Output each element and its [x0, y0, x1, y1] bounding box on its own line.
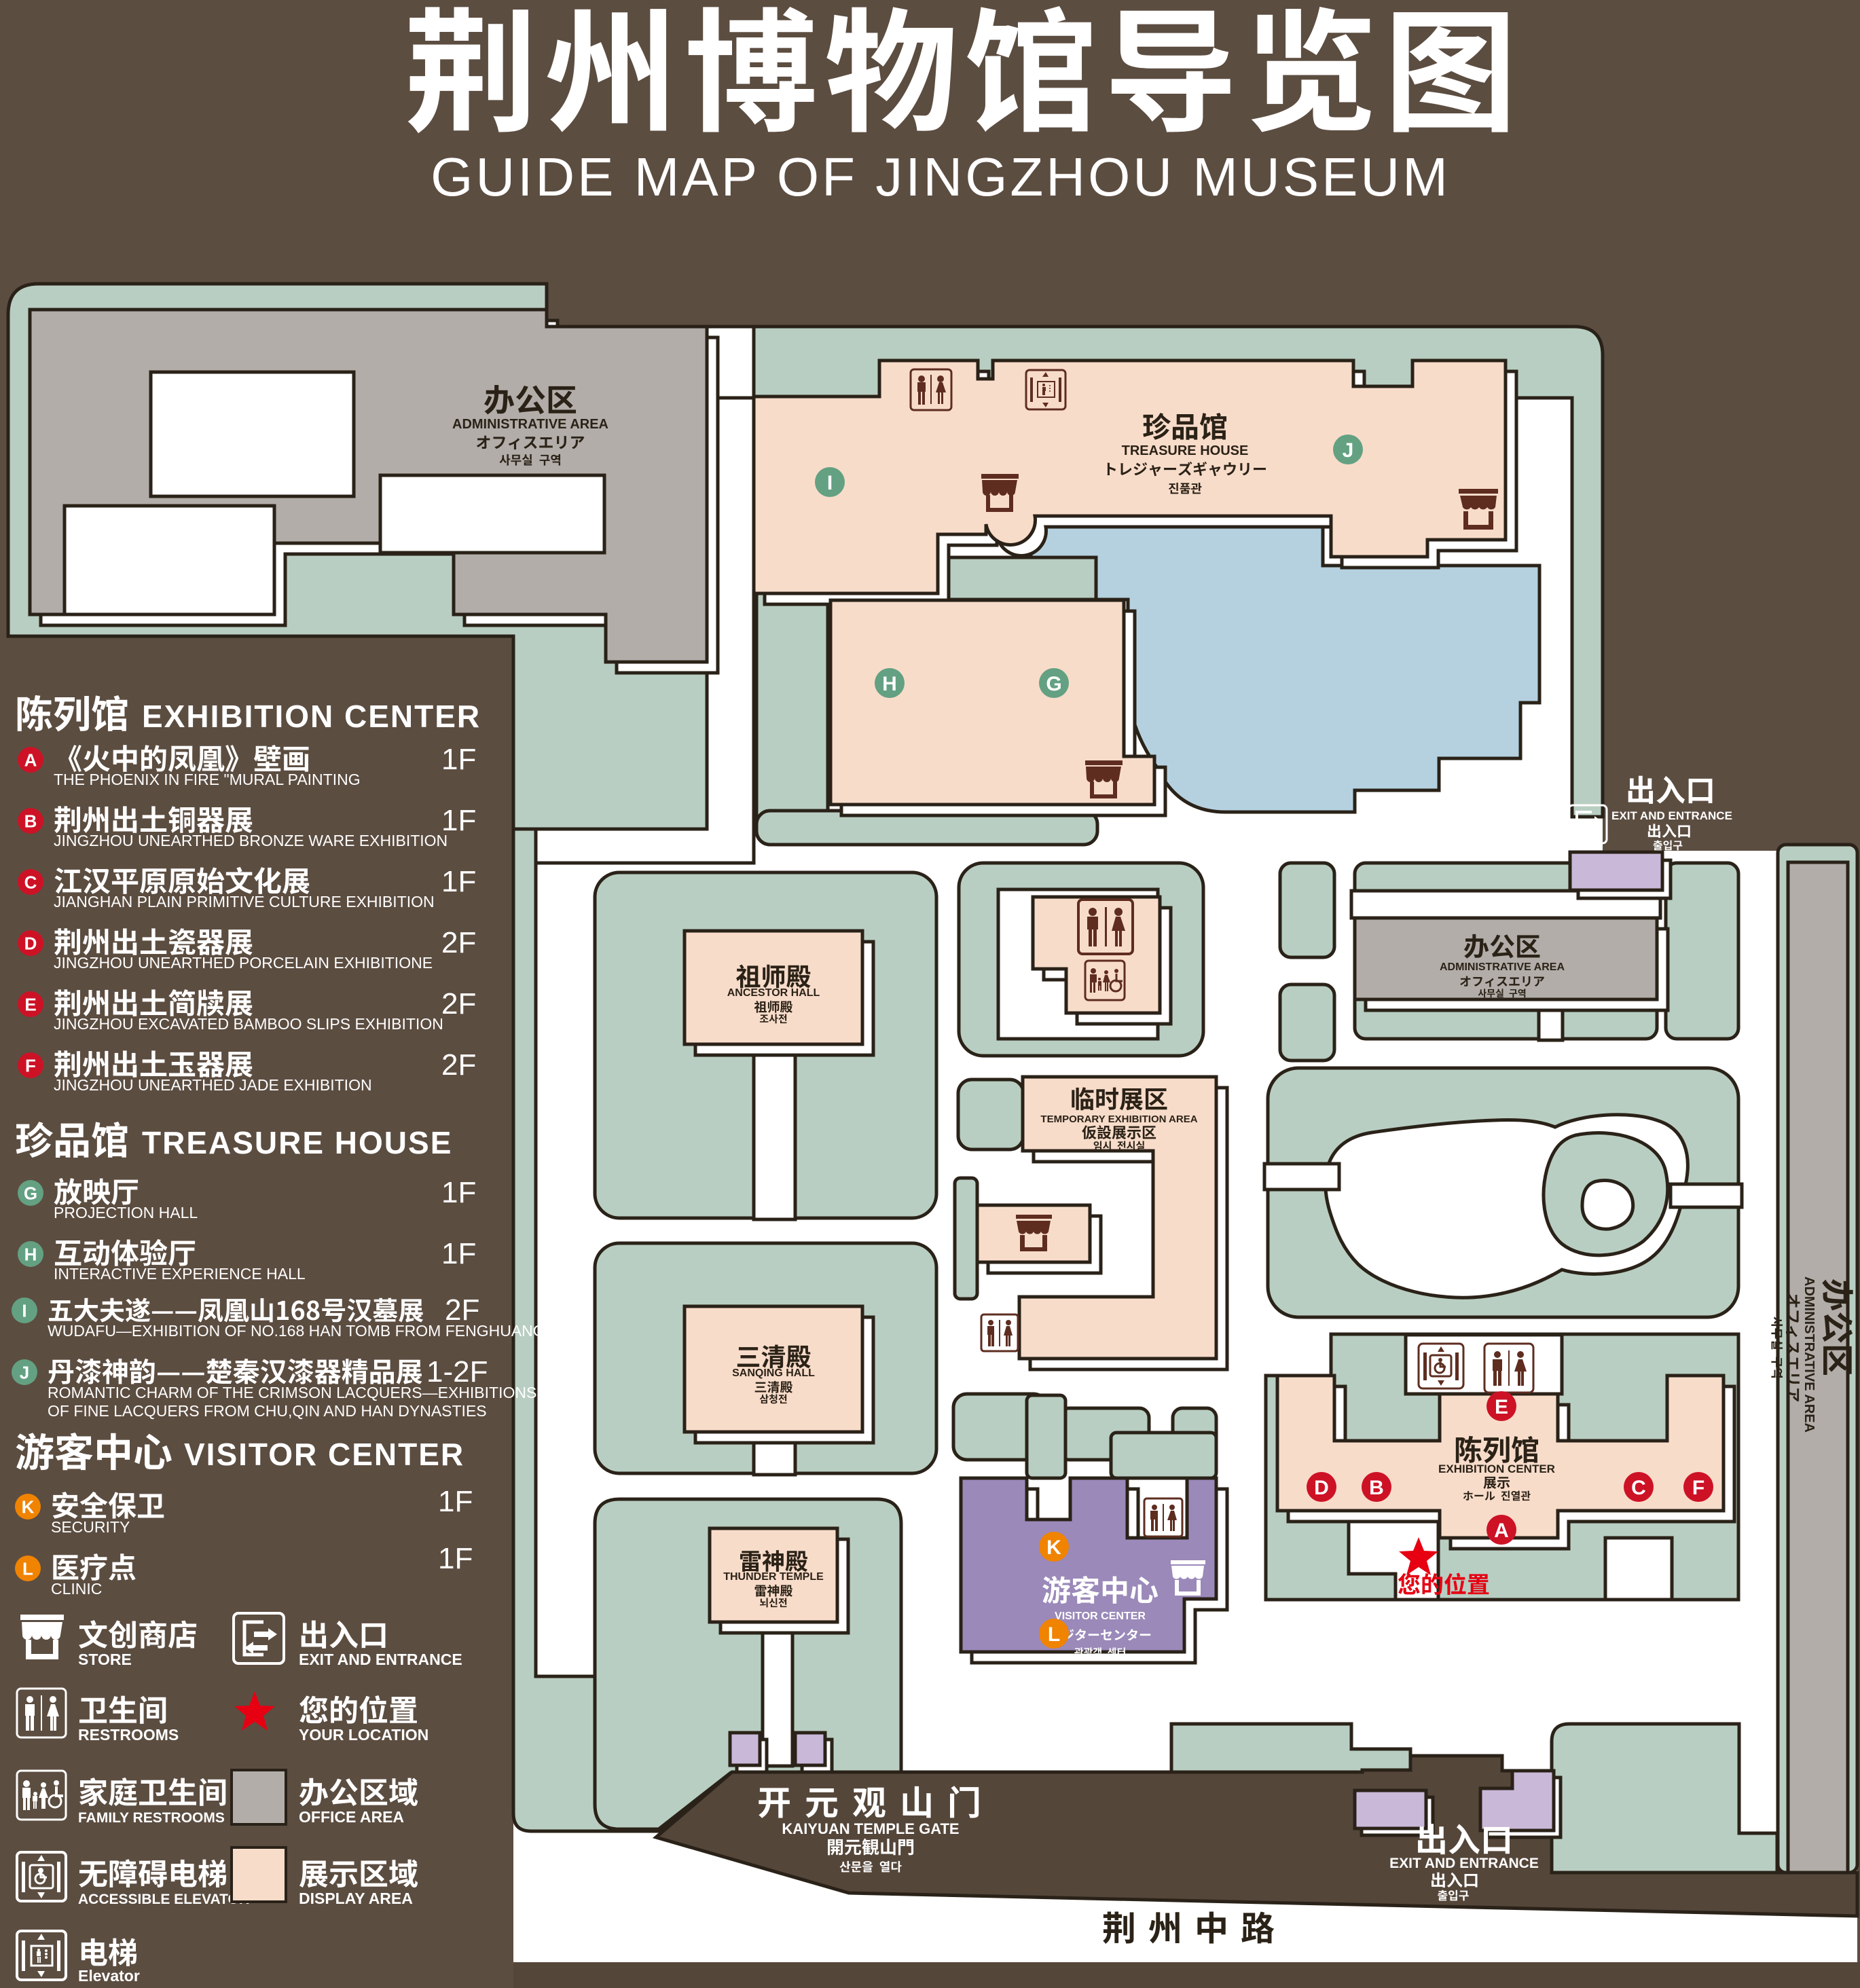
svg-text:JIANGHAN PLAIN PRIMITIVE CULTU: JIANGHAN PLAIN PRIMITIVE CULTURE EXHIBIT…	[54, 893, 435, 910]
svg-text:1F: 1F	[438, 1485, 473, 1518]
svg-text:E: E	[24, 994, 36, 1014]
svg-text:EXIT AND ENTRANCE: EXIT AND ENTRANCE	[299, 1651, 462, 1668]
svg-text:ADMINISTRATIVE AREA: ADMINISTRATIVE AREA	[452, 417, 608, 432]
svg-text:THE PHOENIX IN FIRE "MURAL PAI: THE PHOENIX IN FIRE "MURAL PAINTING	[54, 771, 361, 788]
svg-text:SECURITY: SECURITY	[51, 1518, 130, 1536]
svg-text:DISPLAY AREA: DISPLAY AREA	[299, 1890, 413, 1907]
svg-text:I: I	[827, 472, 833, 494]
svg-text:H: H	[882, 673, 897, 695]
svg-text:I: I	[22, 1300, 26, 1321]
svg-text:J: J	[20, 1362, 29, 1382]
svg-text:OF FINE LACQUERS FROM CHU,QIN: OF FINE LACQUERS FROM CHU,QIN AND HAN DY…	[48, 1402, 487, 1420]
svg-text:L: L	[22, 1558, 33, 1579]
svg-text:A: A	[1494, 1520, 1509, 1542]
svg-text:1F: 1F	[441, 743, 476, 776]
svg-text:TREASURE HOUSE: TREASURE HOUSE	[1122, 443, 1249, 458]
svg-text:VISITOR CENTER: VISITOR CENTER	[184, 1437, 464, 1472]
svg-text:RESTROOMS: RESTROOMS	[78, 1726, 179, 1744]
svg-text:2F: 2F	[441, 1048, 476, 1082]
svg-text:JINGZHOU UNEARTHED JADE EXHIBI: JINGZHOU UNEARTHED JADE EXHIBITION	[54, 1076, 372, 1094]
svg-text:TEMPORARY EXHIBITION AREA: TEMPORARY EXHIBITION AREA	[1040, 1113, 1197, 1125]
svg-text:ADMINISTRATIVE AREA: ADMINISTRATIVE AREA	[1440, 961, 1565, 973]
svg-text:EXHIBITION CENTER: EXHIBITION CENTER	[1438, 1462, 1555, 1475]
svg-text:1-2F: 1-2F	[426, 1355, 488, 1388]
svg-text:A: A	[24, 750, 37, 770]
svg-text:ADMINISTRATIVE AREA: ADMINISTRATIVE AREA	[1802, 1276, 1817, 1433]
svg-text:WUDAFU—EXHIBITION OF NO.168 HA: WUDAFU—EXHIBITION OF NO.168 HAN TOMB FRO…	[48, 1322, 589, 1340]
svg-text:J: J	[1343, 439, 1354, 462]
svg-text:B: B	[1369, 1477, 1384, 1499]
svg-text:PROJECTION HALL: PROJECTION HALL	[54, 1204, 198, 1221]
svg-text:L: L	[1048, 1623, 1060, 1646]
svg-text:1F: 1F	[441, 1176, 476, 1209]
svg-text:GUIDE MAP OF JINGZHOU MUSEUM: GUIDE MAP OF JINGZHOU MUSEUM	[431, 147, 1451, 207]
svg-text:2F: 2F	[441, 987, 476, 1020]
svg-text:E: E	[1495, 1396, 1508, 1418]
svg-text:G: G	[1046, 673, 1061, 695]
svg-text:D: D	[24, 933, 37, 953]
svg-text:EXHIBITION CENTER: EXHIBITION CENTER	[142, 699, 481, 734]
svg-text:D: D	[1314, 1477, 1329, 1499]
svg-text:CLINIC: CLINIC	[51, 1580, 102, 1598]
svg-text:JINGZHOU EXCAVATED BAMBOO SLIP: JINGZHOU EXCAVATED BAMBOO SLIPS EXHIBITI…	[54, 1015, 443, 1033]
svg-text:YOUR LOCATION: YOUR LOCATION	[299, 1726, 428, 1744]
svg-text:2F: 2F	[441, 926, 476, 959]
svg-text:VISITOR CENTER: VISITOR CENTER	[1055, 1610, 1146, 1622]
svg-text:INTERACTIVE EXPERIENCE HALL: INTERACTIVE EXPERIENCE HALL	[54, 1265, 306, 1283]
svg-text:JINGZHOU UNEARTHED BRONZE WARE: JINGZHOU UNEARTHED BRONZE WARE EXHIBITIO…	[54, 832, 448, 849]
svg-text:STORE: STORE	[78, 1651, 132, 1668]
svg-text:EXIT AND ENTRANCE: EXIT AND ENTRANCE	[1611, 809, 1732, 822]
svg-text:1F: 1F	[441, 804, 476, 837]
svg-text:1F: 1F	[438, 1542, 473, 1575]
svg-text:1F: 1F	[441, 865, 476, 898]
svg-text:F: F	[1692, 1477, 1704, 1499]
svg-text:B: B	[24, 811, 37, 831]
svg-text:OFFICE AREA: OFFICE AREA	[299, 1808, 404, 1826]
svg-text:C: C	[24, 872, 37, 892]
svg-text:KAIYUAN TEMPLE GATE: KAIYUAN TEMPLE GATE	[782, 1820, 959, 1837]
svg-text:Elevator: Elevator	[78, 1967, 140, 1985]
svg-text:THUNDER TEMPLE: THUNDER TEMPLE	[723, 1571, 824, 1583]
svg-text:TREASURE HOUSE: TREASURE HOUSE	[142, 1125, 452, 1160]
svg-text:SANQING HALL: SANQING HALL	[732, 1367, 815, 1379]
svg-text:H: H	[24, 1244, 37, 1264]
svg-text:EXIT AND ENTRANCE: EXIT AND ENTRANCE	[1389, 1856, 1539, 1871]
svg-text:FAMILY RESTROOMS: FAMILY RESTROOMS	[78, 1810, 225, 1826]
svg-text:1F: 1F	[441, 1237, 476, 1270]
svg-text:K: K	[22, 1496, 35, 1517]
svg-text:C: C	[1631, 1477, 1646, 1499]
svg-text:JINGZHOU UNEARTHED PORCELAIN E: JINGZHOU UNEARTHED PORCELAIN EXHIBITIONE	[54, 954, 433, 972]
svg-text:2F: 2F	[445, 1293, 479, 1327]
svg-text:F: F	[25, 1055, 36, 1075]
svg-text:G: G	[24, 1183, 37, 1203]
svg-text:ANCESTOR HALL: ANCESTOR HALL	[727, 987, 820, 999]
svg-text:K: K	[1046, 1536, 1061, 1559]
svg-text:ACCESSIBLE ELEVATOR: ACCESSIBLE ELEVATOR	[78, 1892, 249, 1907]
